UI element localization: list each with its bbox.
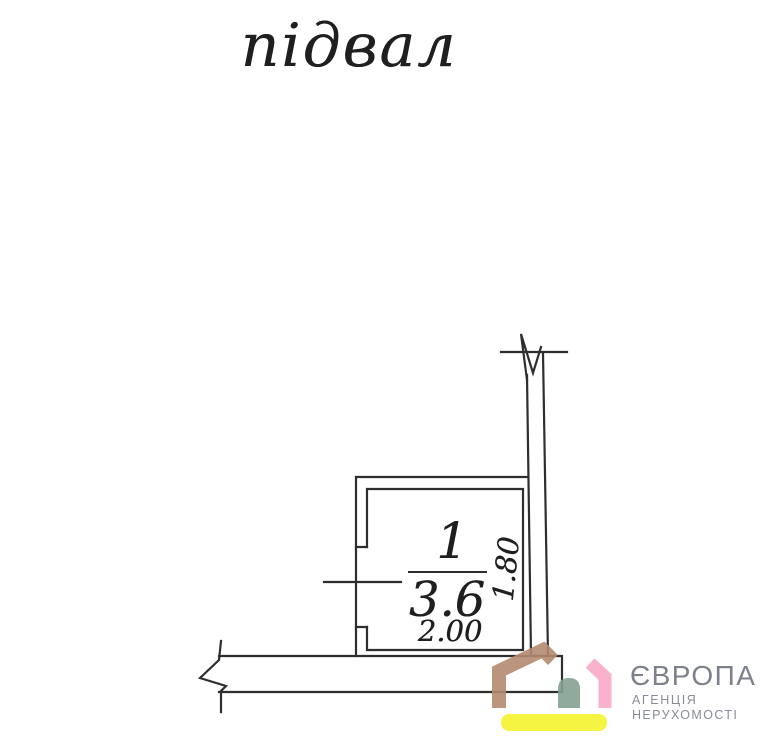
floorplan-scan-page: підвал [0,0,780,750]
logo-ground-bar-icon [501,714,607,731]
break-symbol-left [200,641,226,712]
agency-brand-name: ЄВРОПА [630,660,756,692]
agency-tagline-line1: АГЕНЦІЯ [632,693,697,707]
logo-roof-right-icon [590,663,605,708]
plan-walls-group [200,334,567,712]
room-right-wall [527,375,531,656]
floor-plan-drawing [0,0,780,750]
logo-roof-left-icon [499,650,553,708]
agency-tagline-line2: НЕРУХОМОСТІ [632,708,738,722]
outer-wall-right [543,353,548,656]
agency-logo-mark [499,650,607,731]
break-symbol-top [521,334,541,380]
room-number-label: 1 [436,512,468,570]
wall-opening-ticks [324,547,401,627]
room-height-dimension: 1.80 [486,535,527,603]
logo-door-icon [558,678,580,708]
room-width-dimension: 2.00 [418,614,483,648]
